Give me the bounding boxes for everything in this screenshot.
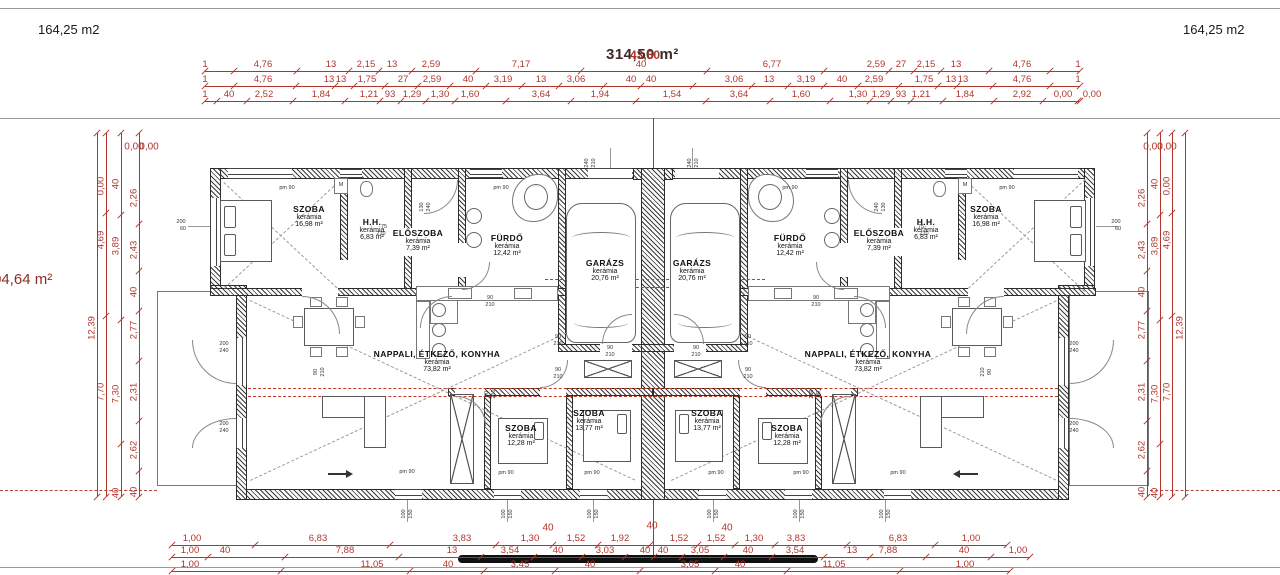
annotation-label: 90 bbox=[745, 334, 751, 340]
dim-label: 1,21 bbox=[360, 89, 379, 100]
dim-label: 1,21 bbox=[912, 89, 931, 100]
room-label: FÜRDŐkerámia12,42 m² bbox=[427, 233, 587, 257]
dim-label: 0,00 bbox=[96, 177, 107, 196]
garage-door-right bbox=[675, 168, 719, 179]
dim-label: 7,30 bbox=[111, 385, 122, 404]
annotation-label: 90 bbox=[607, 345, 613, 351]
annotation-label: 210 bbox=[743, 341, 752, 347]
dim-label: 1 bbox=[202, 89, 207, 100]
wall-left-lower bbox=[236, 291, 247, 500]
annotation-label: 130 bbox=[881, 202, 887, 211]
kitchen-sink bbox=[774, 288, 792, 299]
annotation-label: 240 bbox=[219, 428, 228, 434]
annotation-label: 210 bbox=[980, 367, 986, 376]
floorplan-canvas: 164,25 m2 164,25 m2 314,50 m² 43,50 04,6… bbox=[0, 0, 1280, 575]
dim-chain-line-v bbox=[1185, 133, 1186, 497]
dim-label: 1,75 bbox=[915, 74, 934, 85]
leader-line bbox=[610, 148, 611, 168]
dim-label: 3,89 bbox=[111, 237, 122, 256]
terrace-door bbox=[236, 418, 247, 448]
dim-label: 1,92 bbox=[611, 533, 630, 544]
chair bbox=[1003, 316, 1013, 328]
party-wall bbox=[641, 168, 665, 500]
dim-label: 4,76 bbox=[1013, 74, 1032, 85]
annotation-label: 240 bbox=[426, 202, 432, 211]
dim-label: 1,30 bbox=[521, 533, 540, 544]
door-gap bbox=[540, 388, 566, 396]
door-arc bbox=[302, 296, 340, 334]
entrance-arrow-head bbox=[346, 470, 353, 478]
dim-label: 93 bbox=[896, 89, 907, 100]
dim-label-free: 0,00 bbox=[139, 142, 158, 153]
dim-label-free: 40 bbox=[542, 523, 553, 534]
sheet-border-top bbox=[0, 8, 1280, 9]
chair bbox=[310, 347, 322, 357]
room-material: kerámia bbox=[707, 433, 867, 440]
chair bbox=[355, 316, 365, 328]
room-name: NAPPALI, ÉTKEZŐ, KONYHA bbox=[788, 349, 948, 359]
dim-label: 11,05 bbox=[822, 559, 845, 570]
bathtub-basin bbox=[758, 184, 782, 210]
dim-label: 40 bbox=[129, 287, 140, 298]
annotation-label: 90 bbox=[816, 391, 822, 397]
bathtub-basin bbox=[524, 184, 548, 210]
annotation-label: 90 bbox=[813, 295, 819, 301]
dim-label: 40 bbox=[463, 74, 474, 85]
dim-label: 2,77 bbox=[129, 321, 140, 340]
dim-label: 3,64 bbox=[730, 89, 749, 100]
window bbox=[395, 489, 422, 500]
dim-label: 1,30 bbox=[849, 89, 868, 100]
dim-label: 1,30 bbox=[431, 89, 450, 100]
terrace-door bbox=[236, 338, 247, 385]
room-area: 20,76 m² bbox=[612, 275, 772, 282]
annotation-label: 150 bbox=[594, 509, 600, 518]
dim-label: 13 bbox=[958, 74, 969, 85]
window bbox=[494, 489, 521, 500]
annotation-label: 100 bbox=[707, 509, 713, 518]
annotation-label: 75 bbox=[918, 224, 924, 230]
annotation-label: 240 bbox=[219, 348, 228, 354]
annotation-label: pm 90 bbox=[279, 185, 294, 191]
dim-label-free: 0,00 bbox=[1157, 142, 1176, 153]
dim-label: 3,83 bbox=[453, 533, 472, 544]
dim-label: 1,00 bbox=[181, 545, 200, 556]
dim-label: 40 bbox=[959, 545, 970, 556]
annotation-label: 210 bbox=[743, 374, 752, 380]
dim-label: 40 bbox=[129, 487, 140, 498]
dim-label: 2,92 bbox=[1013, 89, 1032, 100]
pillow bbox=[1070, 206, 1082, 228]
dim-label: 93 bbox=[385, 89, 396, 100]
dim-label: 40 bbox=[111, 179, 122, 190]
dim-label: 3,06 bbox=[567, 74, 586, 85]
annotation-label: 210 bbox=[320, 367, 326, 376]
area-label-right: 164,25 m2 bbox=[1183, 22, 1244, 37]
dim-label: 40 bbox=[1150, 179, 1161, 190]
dim-label-free: 40 bbox=[646, 521, 657, 532]
annotation-label: 210 bbox=[919, 231, 928, 237]
door-gap bbox=[674, 344, 706, 352]
window bbox=[785, 489, 812, 500]
dim-label: 11,05 bbox=[360, 559, 383, 570]
window bbox=[470, 169, 502, 178]
dim-label: 1,75 bbox=[358, 74, 377, 85]
dim-tick bbox=[1026, 553, 1033, 560]
annotation-label: 90 bbox=[555, 334, 561, 340]
dim-label: 13 bbox=[324, 74, 335, 85]
annotation-label: 210 bbox=[809, 389, 815, 398]
annotation-label: 210 bbox=[691, 352, 700, 358]
red-dashdot-right bbox=[1150, 490, 1280, 491]
dim-label: 40 bbox=[640, 545, 651, 556]
dim-label: 1,54 bbox=[663, 89, 682, 100]
annotation-label: 240 bbox=[1069, 348, 1078, 354]
annotation-label: 210 bbox=[605, 352, 614, 358]
annotation-label: M bbox=[339, 182, 344, 188]
dim-label: 2,62 bbox=[1137, 441, 1148, 460]
room-area: 73,82 m² bbox=[357, 366, 517, 373]
dim-label: 27 bbox=[896, 59, 907, 70]
room-label: SZOBAkerámia12,28 m² bbox=[707, 423, 867, 447]
dim-label: 1,52 bbox=[670, 533, 689, 544]
dim-chain-line bbox=[205, 86, 1080, 87]
dim-label: 3,03 bbox=[596, 545, 615, 556]
dim-label: 13 bbox=[387, 59, 398, 70]
annotation-label: 200 bbox=[1111, 219, 1120, 225]
dim-label: 3,19 bbox=[494, 74, 513, 85]
room-name: SZOBA bbox=[627, 408, 787, 418]
dim-label: 2,31 bbox=[1137, 383, 1148, 402]
dim-label: 1,29 bbox=[872, 89, 891, 100]
dim-label: 3,05 bbox=[681, 559, 700, 570]
terrace-door bbox=[1058, 338, 1069, 385]
dim-label: 1 bbox=[202, 59, 207, 70]
dim-chain-line bbox=[172, 557, 1030, 558]
dim-chain-line bbox=[205, 71, 1080, 72]
dim-label: 2,59 bbox=[423, 74, 442, 85]
annotation-label: pm 90 bbox=[708, 470, 723, 476]
annotation-label: 100 bbox=[587, 509, 593, 518]
chair bbox=[336, 347, 348, 357]
entrance-arrow bbox=[328, 473, 346, 475]
kitchen-sink bbox=[514, 288, 532, 299]
annotation-label: 240 bbox=[1069, 428, 1078, 434]
dim-chain-line bbox=[205, 101, 1080, 102]
door-arc bbox=[456, 396, 486, 426]
annotation-label: 240 bbox=[874, 202, 880, 211]
wardrobe bbox=[584, 360, 632, 378]
room-area: 7,39 m² bbox=[799, 245, 959, 252]
dim-label: 13 bbox=[326, 59, 337, 70]
dim-label: 7,30 bbox=[1150, 385, 1161, 404]
pillow bbox=[1070, 234, 1082, 256]
area-label-left: 164,25 m2 bbox=[38, 22, 99, 37]
dim-label: 1,00 bbox=[962, 533, 981, 544]
annotation-label: pm 90 bbox=[793, 470, 808, 476]
window bbox=[806, 169, 838, 178]
dim-label: 4,76 bbox=[254, 74, 273, 85]
window bbox=[699, 489, 726, 500]
dim-label: 4,76 bbox=[254, 59, 273, 70]
dim-label: 2,31 bbox=[129, 383, 140, 402]
annotation-label: pm 90 bbox=[399, 469, 414, 475]
dim-label: 13 bbox=[951, 59, 962, 70]
chair bbox=[958, 297, 970, 307]
toilet bbox=[933, 181, 946, 197]
dim-label: 7,88 bbox=[879, 545, 898, 556]
dim-label: 1,00 bbox=[1009, 545, 1028, 556]
dim-label: 12,39 bbox=[87, 316, 98, 340]
room-label: GARÁZSkerámia20,76 m² bbox=[612, 258, 772, 282]
entrance-arrow-head bbox=[953, 470, 960, 478]
window bbox=[945, 169, 967, 178]
room-area: 73,82 m² bbox=[788, 366, 948, 373]
door-arc bbox=[820, 396, 850, 426]
dim-label: 2,15 bbox=[357, 59, 376, 70]
dim-label: 2,59 bbox=[865, 74, 884, 85]
room-material: kerámia bbox=[788, 359, 948, 366]
dim-tick bbox=[102, 493, 109, 500]
annotation-label: 210 bbox=[376, 231, 385, 237]
annotation-label: 210 bbox=[553, 341, 562, 347]
dim-label: 2,52 bbox=[255, 89, 274, 100]
dim-label: 40 bbox=[636, 59, 647, 70]
chair bbox=[336, 297, 348, 307]
dim-label: 2,26 bbox=[1137, 189, 1148, 208]
dim-label-free: 40 bbox=[721, 523, 732, 534]
dim-label: 1,00 bbox=[956, 559, 975, 570]
dim-label: 40 bbox=[658, 545, 669, 556]
annotation-label: 150 bbox=[714, 509, 720, 518]
dim-label: 7,17 bbox=[512, 59, 531, 70]
room-name: SZOBA bbox=[906, 204, 1066, 214]
room-material: kerámia bbox=[427, 243, 587, 250]
room-label: NAPPALI, ÉTKEZŐ, KONYHAkerámia73,82 m² bbox=[788, 349, 948, 373]
annotation-label: 90 bbox=[745, 367, 751, 373]
dim-label: 3,83 bbox=[787, 533, 806, 544]
dim-label: 13 bbox=[946, 74, 957, 85]
red-dashed-line bbox=[248, 388, 1058, 389]
room-material: kerámia bbox=[612, 268, 772, 275]
dim-tick bbox=[1181, 493, 1188, 500]
dim-label: 3,05 bbox=[691, 545, 710, 556]
dim-label: 2,43 bbox=[129, 241, 140, 260]
annotation-label: 90 bbox=[693, 345, 699, 351]
dim-label: 2,15 bbox=[917, 59, 936, 70]
dim-label: 2,26 bbox=[129, 189, 140, 208]
annotation-label: 60 bbox=[180, 226, 186, 232]
annotation-label: 210 bbox=[591, 158, 597, 167]
dim-label: 40 bbox=[220, 545, 231, 556]
dim-label: 4,76 bbox=[1013, 59, 1032, 70]
dim-label: 40 bbox=[224, 89, 235, 100]
annotation-label: 100 bbox=[793, 509, 799, 518]
dim-label: 2,59 bbox=[422, 59, 441, 70]
dim-tick bbox=[93, 493, 100, 500]
room-name: H.H. bbox=[292, 217, 452, 227]
room-material: kerámia bbox=[906, 214, 1066, 221]
toilet bbox=[360, 181, 373, 197]
dim-label: 3,89 bbox=[1150, 237, 1161, 256]
annotation-label: 210 bbox=[811, 302, 820, 308]
annotation-label: pm 90 bbox=[999, 185, 1014, 191]
area-label-side: 04,64 m² bbox=[0, 271, 52, 288]
dim-label: 13 bbox=[336, 74, 347, 85]
annotation-label: 90 bbox=[487, 295, 493, 301]
sofa bbox=[364, 396, 386, 448]
dim-label: 7,88 bbox=[336, 545, 355, 556]
annotation-label: pm 90 bbox=[498, 470, 513, 476]
annotation-label: M bbox=[963, 182, 968, 188]
annotation-label: pm 90 bbox=[890, 470, 905, 476]
dim-label: 40 bbox=[585, 559, 596, 570]
room-area: 12,28 m² bbox=[707, 440, 867, 447]
dim-label: 3,06 bbox=[725, 74, 744, 85]
dim-label: 1 bbox=[1075, 59, 1080, 70]
window bbox=[340, 169, 362, 178]
dim-label: 0,00 bbox=[1054, 89, 1073, 100]
annotation-label: 200 bbox=[1069, 421, 1078, 427]
room-label: SZOBAkerámia16,98 m² bbox=[906, 204, 1066, 228]
door-gap bbox=[302, 288, 338, 296]
dim-label: 13 bbox=[447, 545, 458, 556]
annotation-label: 100 bbox=[401, 509, 407, 518]
door-gap bbox=[600, 344, 632, 352]
annotation-label: pm 90 bbox=[584, 470, 599, 476]
door-arc bbox=[966, 296, 1004, 334]
dim-label: 1,84 bbox=[956, 89, 975, 100]
dim-label: 12,39 bbox=[1175, 316, 1186, 340]
room-name: SZOBA bbox=[229, 204, 389, 214]
sofa bbox=[920, 396, 942, 448]
dim-label: 40 bbox=[111, 488, 122, 499]
dim-label: 13 bbox=[536, 74, 547, 85]
dim-label: 13 bbox=[764, 74, 775, 85]
annotation-label: 150 bbox=[408, 509, 414, 518]
chair bbox=[941, 316, 951, 328]
annotation-label: 150 bbox=[800, 509, 806, 518]
window bbox=[580, 489, 607, 500]
annotation-label: 210 bbox=[485, 302, 494, 308]
annotation-label: 100 bbox=[879, 509, 885, 518]
dim-label: 1,29 bbox=[403, 89, 422, 100]
dim-label: 4,69 bbox=[1162, 231, 1173, 250]
room-material: kerámia bbox=[441, 433, 601, 440]
dim-label: 3,54 bbox=[501, 545, 520, 556]
annotation-label: 210 bbox=[553, 374, 562, 380]
annotation-label: 240 bbox=[687, 158, 693, 167]
terrace-door bbox=[1058, 418, 1069, 448]
annotation-label: pm 90 bbox=[782, 185, 797, 191]
dim-label: 7,70 bbox=[96, 383, 107, 402]
door-gap bbox=[340, 260, 348, 290]
dim-label: 6,77 bbox=[763, 59, 782, 70]
room-name: GARÁZS bbox=[612, 258, 772, 268]
dim-label: 1,94 bbox=[591, 89, 610, 100]
annotation-label: 75 bbox=[381, 224, 387, 230]
dim-label: 40 bbox=[646, 74, 657, 85]
dim-label: 2,43 bbox=[1137, 241, 1148, 260]
annotation-label: 90 bbox=[987, 369, 993, 375]
annotation-label: 200 bbox=[176, 219, 185, 225]
dim-label: 1,84 bbox=[312, 89, 331, 100]
door-gap bbox=[968, 288, 1004, 296]
wall-right-lower bbox=[1058, 291, 1069, 500]
dim-chain-line bbox=[172, 571, 1010, 572]
dim-label: 40 bbox=[743, 545, 754, 556]
dim-label: 7,70 bbox=[1162, 383, 1173, 402]
dim-label: 40 bbox=[1150, 488, 1161, 499]
dim-label: 0,00 bbox=[1162, 177, 1173, 196]
garage-door-left bbox=[588, 168, 632, 179]
wardrobe bbox=[674, 360, 722, 378]
room-name: FÜRDŐ bbox=[427, 233, 587, 243]
chair bbox=[984, 347, 996, 357]
annotation-label: 150 bbox=[886, 509, 892, 518]
annotation-label: 90 bbox=[555, 367, 561, 373]
annotation-label: 100 bbox=[501, 509, 507, 518]
window bbox=[228, 168, 292, 179]
dim-label: 40 bbox=[1137, 287, 1148, 298]
window bbox=[1014, 168, 1078, 179]
annotation-label: 60 bbox=[1115, 226, 1121, 232]
pillow bbox=[224, 234, 236, 256]
door-gap bbox=[740, 388, 766, 396]
dim-label: 40 bbox=[837, 74, 848, 85]
annotation-label: 150 bbox=[508, 509, 514, 518]
window bbox=[884, 489, 911, 500]
annotation-label: 200 bbox=[219, 341, 228, 347]
dim-label: 3,19 bbox=[797, 74, 816, 85]
door-gap bbox=[958, 260, 966, 290]
room-material: kerámia bbox=[357, 359, 517, 366]
dim-label: 1,00 bbox=[183, 533, 202, 544]
terrace-left bbox=[157, 291, 237, 486]
dim-label: 1,30 bbox=[745, 533, 764, 544]
chair bbox=[958, 347, 970, 357]
dim-label: 3,54 bbox=[786, 545, 805, 556]
dim-label: 6,83 bbox=[889, 533, 908, 544]
dim-label: 40 bbox=[553, 545, 564, 556]
dim-label: 2,77 bbox=[1137, 321, 1148, 340]
dim-label: 40 bbox=[1137, 487, 1148, 498]
room-area: 12,28 m² bbox=[441, 440, 601, 447]
room-area: 12,42 m² bbox=[427, 250, 587, 257]
dim-label: 4,69 bbox=[96, 231, 107, 250]
annotation-label: 240 bbox=[584, 158, 590, 167]
annotation-label: 210 bbox=[491, 389, 497, 398]
dim-label: 3,64 bbox=[532, 89, 551, 100]
entrance-arrow bbox=[960, 473, 978, 475]
dim-label: 6,83 bbox=[309, 533, 328, 544]
dim-label: 27 bbox=[398, 74, 409, 85]
dim-label: 1,52 bbox=[707, 533, 726, 544]
dim-label: 3,45 bbox=[511, 559, 530, 570]
annotation-label: pm 90 bbox=[493, 185, 508, 191]
dim-label: 1,60 bbox=[792, 89, 811, 100]
annotation-label: 210 bbox=[694, 158, 700, 167]
annotation-label: 200 bbox=[219, 421, 228, 427]
dim-label: 2,62 bbox=[129, 441, 140, 460]
dim-label: 1,60 bbox=[461, 89, 480, 100]
dim-label: 1 bbox=[1075, 74, 1080, 85]
dim-label: 1,52 bbox=[567, 533, 586, 544]
dim-tick bbox=[1168, 493, 1175, 500]
sink bbox=[466, 208, 482, 224]
dim-label: 40 bbox=[443, 559, 454, 570]
dim-label: 0,00 bbox=[1083, 89, 1102, 100]
